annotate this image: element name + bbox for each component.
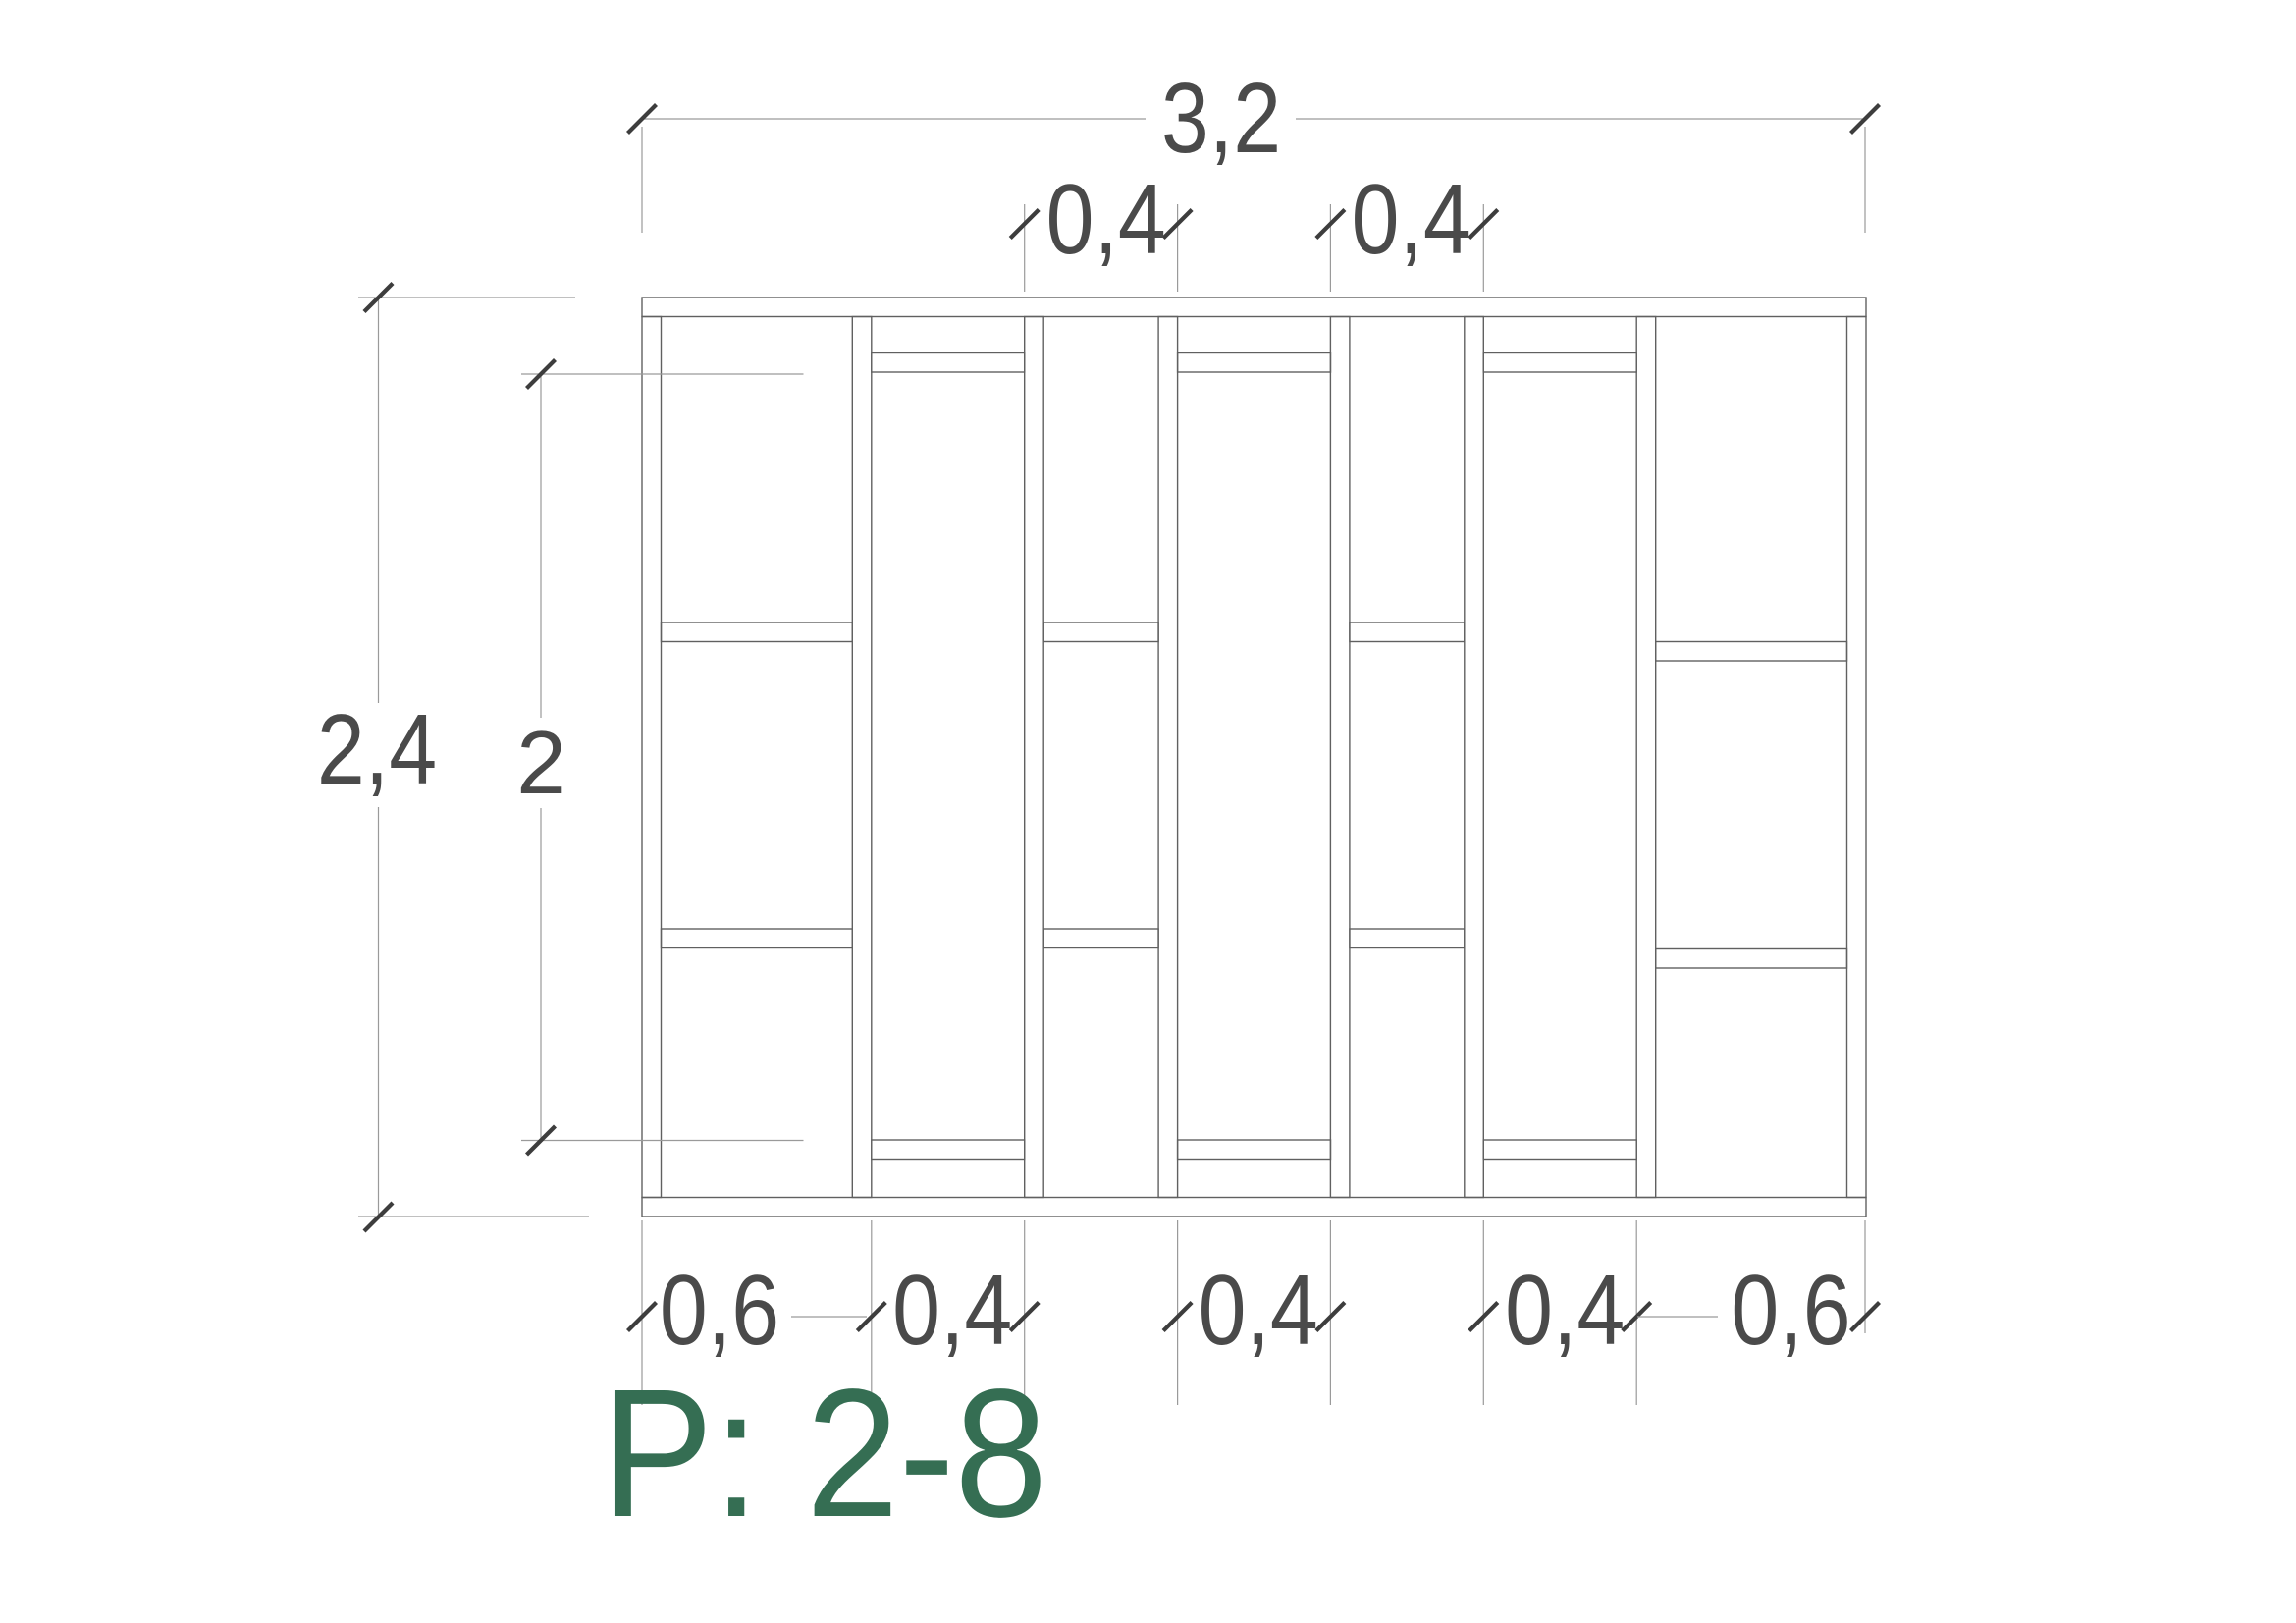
svg-text:0,4: 0,4 xyxy=(1352,164,1471,275)
svg-text:0,4: 0,4 xyxy=(1505,1255,1625,1366)
svg-text:P: 2-8: P: 2-8 xyxy=(602,1351,1047,1555)
svg-text:3,2: 3,2 xyxy=(1161,63,1281,174)
svg-text:2: 2 xyxy=(516,714,566,813)
svg-text:2,4: 2,4 xyxy=(317,694,437,805)
svg-text:0,6: 0,6 xyxy=(660,1255,779,1366)
svg-text:0,6: 0,6 xyxy=(1731,1255,1850,1366)
svg-text:0,4: 0,4 xyxy=(892,1255,1012,1366)
svg-text:0,4: 0,4 xyxy=(1046,164,1166,275)
svg-text:0,4: 0,4 xyxy=(1199,1255,1318,1366)
